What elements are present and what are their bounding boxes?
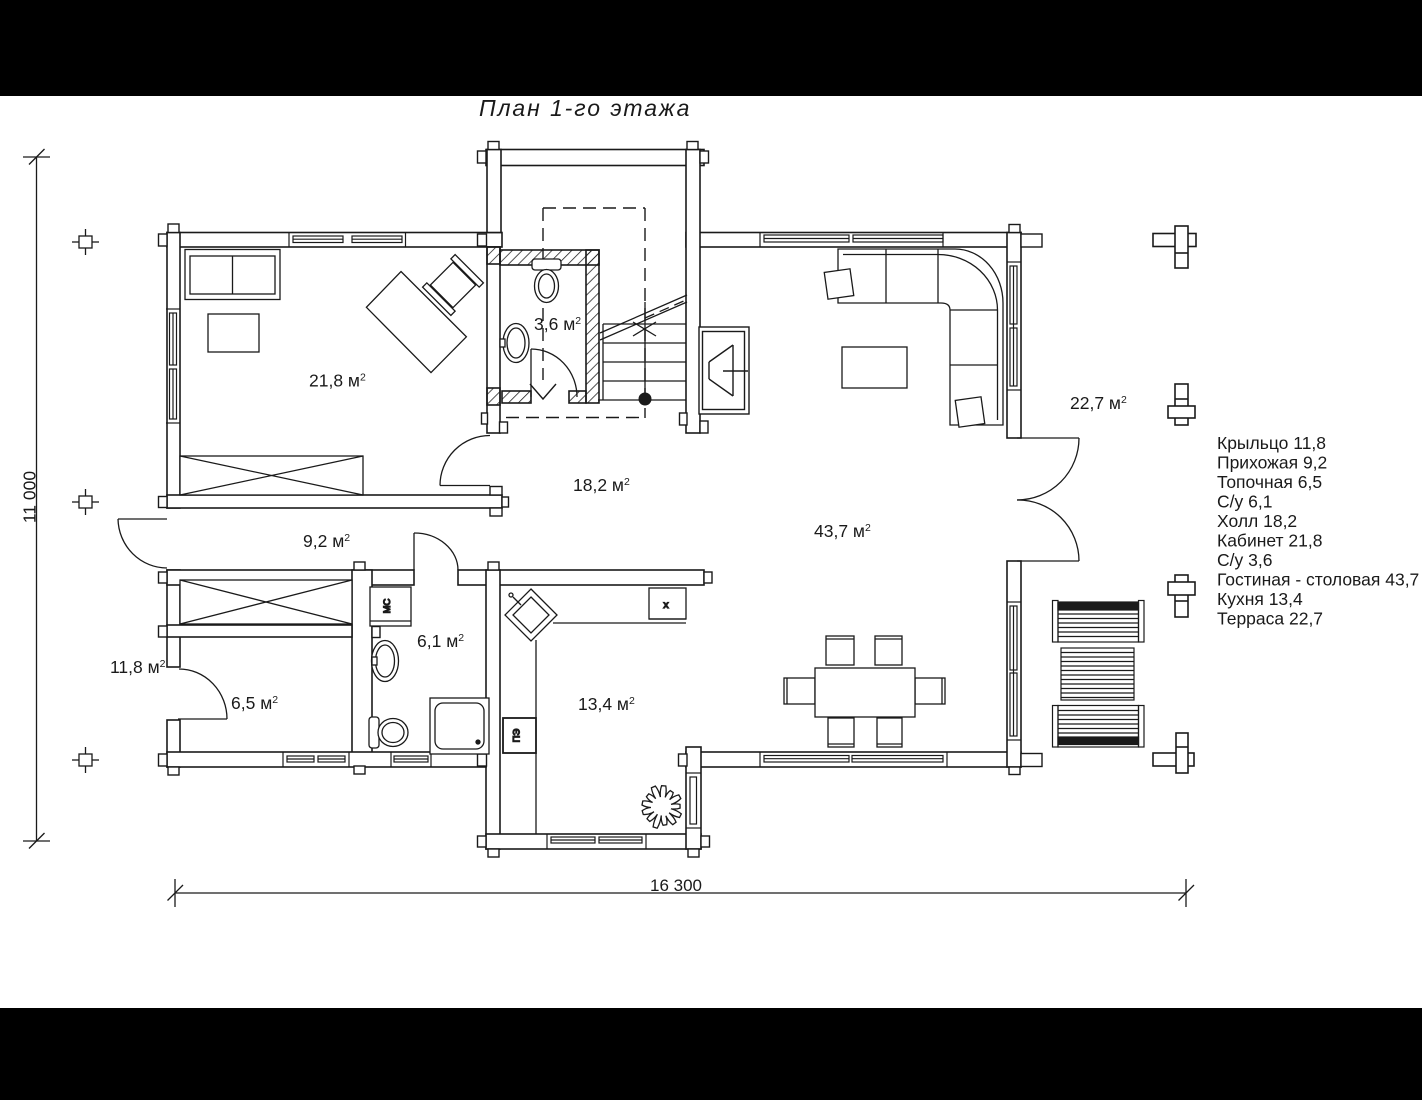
svg-text:С/у 3,6: С/у 3,6 (1217, 550, 1272, 570)
svg-text:6,1 м2: 6,1 м2 (417, 631, 464, 651)
svg-text:x: x (663, 599, 669, 611)
svg-text:11 000: 11 000 (20, 471, 40, 523)
svg-text:22,7 м2: 22,7 м2 (1070, 393, 1127, 413)
svg-text:18,2 м2: 18,2 м2 (573, 475, 630, 495)
svg-text:43,7 м2: 43,7 м2 (814, 521, 871, 541)
svg-text:3,6 м2: 3,6 м2 (534, 314, 581, 334)
svg-text:21,8 м2: 21,8 м2 (309, 371, 366, 391)
svg-text:6,5 м2: 6,5 м2 (231, 693, 278, 713)
svg-text:Холл 18,2: Холл 18,2 (1217, 511, 1297, 531)
svg-text:16 300: 16 300 (650, 876, 702, 895)
svg-text:Кухня 13,4: Кухня 13,4 (1217, 589, 1303, 609)
svg-text:Терраса 22,7: Терраса 22,7 (1217, 609, 1323, 629)
svg-text:9,2 м2: 9,2 м2 (303, 531, 350, 551)
svg-text:Кабинет 21,8: Кабинет 21,8 (1217, 531, 1322, 551)
svg-text:Гостиная - столовая 43,7: Гостиная - столовая 43,7 (1217, 570, 1419, 590)
svg-text:С/у 6,1: С/у 6,1 (1217, 492, 1272, 512)
svg-text:План 1-го этажа: План 1-го этажа (479, 95, 691, 121)
svg-text:МС: МС (382, 598, 393, 613)
svg-text:Крыльцо 11,8: Крыльцо 11,8 (1217, 433, 1326, 453)
svg-text:ПЭ: ПЭ (512, 729, 523, 743)
svg-text:11,8 м2: 11,8 м2 (110, 657, 166, 677)
svg-text:13,4 м2: 13,4 м2 (578, 694, 635, 714)
svg-text:Топочная 6,5: Топочная 6,5 (1217, 472, 1322, 492)
svg-text:Прихожая 9,2: Прихожая 9,2 (1217, 453, 1327, 473)
